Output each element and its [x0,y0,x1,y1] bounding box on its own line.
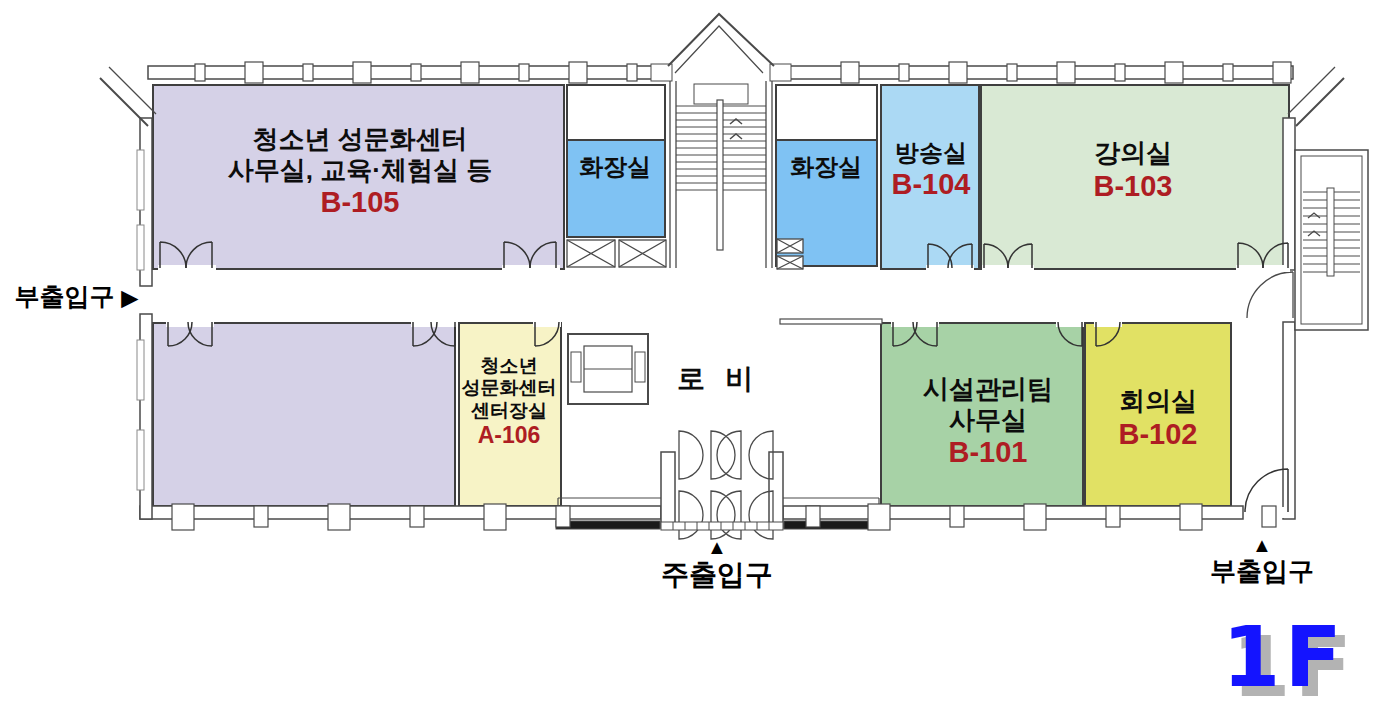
up-arrow-icon: ▲ [1210,536,1314,554]
room-b104-name: 방송실 [892,139,971,167]
room-a106-number: A-106 [462,422,557,449]
main-entrance-text: 주출입구 [661,559,773,590]
right-arrow-icon: ▶ [121,286,137,309]
lobby-label: 로 비 [677,362,759,395]
room-service-left-area [566,84,666,141]
room-a106-name-line2: 성문화센터 [462,377,557,399]
room-b105-number: B-105 [228,186,492,220]
room-a106-label: 청소년 성문화센터 센터장실 A-106 [462,355,557,449]
room-b101-name-line2: 사무실 [923,405,1053,436]
room-service-right-area [775,84,878,141]
room-b105-label: 청소년 성문화센터 사무실, 교육·체험실 등 B-105 [228,124,492,220]
room-b105-name-line1: 청소년 성문화센터 [228,124,492,155]
room-a106-name-line1: 청소년 [462,355,557,377]
room-b101-label: 시설관리팀 사무실 B-101 [923,374,1053,470]
room-lower-left-area [152,322,456,507]
room-b101-number: B-101 [923,436,1053,470]
room-b105-name-line2: 사무실, 교육·체험실 등 [228,155,492,186]
room-b103-label: 강의실 B-103 [1094,138,1173,203]
side-entrance-right-label: ▲ 부출입구 [1210,536,1314,589]
room-b102-number: B-102 [1119,416,1198,450]
room-b101-name-line1: 시설관리팀 [923,374,1053,405]
floor-tag: 1F [1222,608,1346,706]
floorplan-1f: 청소년 성문화센터 사무실, 교육·체험실 등 B-105 화장실 화장실 방송… [0,0,1384,709]
room-b103-name: 강의실 [1094,138,1173,169]
side-entrance-left-label: 부출입구 ▶ [14,280,137,313]
side-entrance-right-text: 부출입구 [1210,556,1314,586]
room-toilet-right-label: 화장실 [790,153,862,181]
main-entrance-label: ▲ 주출입구 [661,538,773,594]
room-b102-label: 회의실 B-102 [1119,386,1198,451]
room-b104-number: B-104 [892,167,971,201]
up-arrow-icon: ▲ [661,538,773,556]
room-b103-number: B-103 [1094,168,1173,202]
room-b102-name: 회의실 [1119,386,1198,417]
room-b104-label: 방송실 B-104 [892,139,971,202]
room-a106-name-line3: 센터장실 [462,400,557,422]
side-entrance-left-text: 부출입구 [14,282,114,310]
room-toilet-left-label: 화장실 [579,153,651,181]
